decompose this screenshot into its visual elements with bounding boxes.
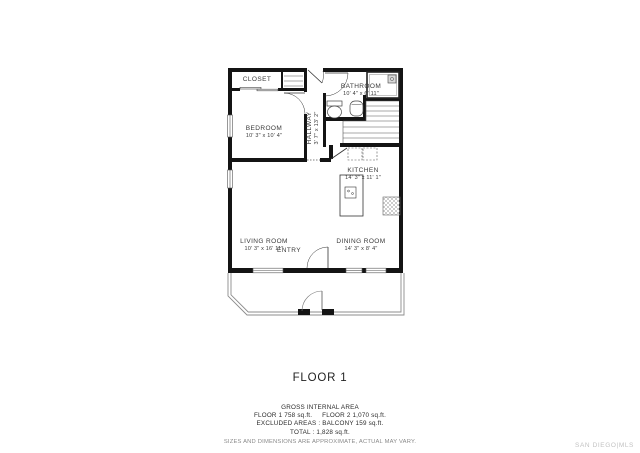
balcony-gate (298, 291, 334, 315)
room-name: BEDROOM (246, 125, 282, 133)
room-label-hallway: HALLWAY 3' 7" x 13' 2" (306, 112, 322, 145)
area-summary-title: GROSS INTERNAL AREA (0, 404, 640, 412)
window (228, 115, 233, 137)
floor1-area: FLOOR 1 758 sq.ft. (254, 412, 312, 419)
disclaimer-text: SIZES AND DIMENSIONS ARE APPROXIMATE, AC… (0, 439, 640, 445)
room-name: DINING ROOM (336, 238, 385, 246)
floor-plan-page: { "floor_plan": { "title": "FLOOR 1", "r… (0, 0, 640, 453)
floor-plan-drawing (220, 55, 415, 325)
room-name: HALLWAY (306, 112, 314, 145)
room-dims: 3' 7" x 13' 2" (315, 112, 322, 145)
linen-closet-shelves (284, 76, 303, 86)
bedroom-door-arc (284, 93, 305, 114)
total-area-line: TOTAL : 1,828 sq.ft. (0, 429, 640, 437)
area-summary: GROSS INTERNAL AREA FLOOR 1 758 sq.ft.FL… (0, 404, 640, 445)
room-label-entry: ENTRY (277, 247, 301, 255)
area-floors-line: FLOOR 1 758 sq.ft.FLOOR 2 1,070 sq.ft. (0, 412, 640, 420)
refrigerator (383, 197, 400, 215)
floor-title: FLOOR 1 (0, 372, 640, 384)
room-name: CLOSET (243, 76, 271, 84)
room-label-bathroom: BATHROOM 10' 4" x 6' 11" (341, 83, 381, 99)
window (346, 268, 362, 273)
room-name: ENTRY (277, 247, 301, 255)
window (253, 268, 283, 273)
sink-fixture (350, 101, 363, 116)
front-door (308, 70, 324, 83)
room-dims: 14' 3" x 8' 4" (336, 247, 385, 254)
closet-sliding-door (240, 87, 278, 91)
excluded-areas-line: EXCLUDED AREAS : BALCONY 159 sq.ft. (0, 420, 640, 428)
room-dims: 14' 3" x 11' 1" (345, 176, 381, 183)
kitchen-door (331, 148, 347, 159)
room-name: BATHROOM (341, 83, 381, 91)
floor2-area: FLOOR 2 1,070 sq.ft. (322, 412, 386, 419)
room-label-bedroom: BEDROOM 10' 3" x 10' 4" (246, 125, 282, 141)
mls-watermark: SAN DIEGO|MLS (575, 442, 634, 449)
room-name: KITCHEN (345, 167, 381, 175)
room-label-closet: CLOSET (243, 76, 271, 84)
entry-door-arc (307, 247, 328, 268)
room-label-kitchen: KITCHEN 14' 3" x 11' 1" (345, 167, 381, 183)
window (228, 170, 233, 188)
room-name: LIVING ROOM (240, 238, 288, 246)
room-dims: 10' 4" x 6' 11" (341, 92, 381, 99)
toilet-fixture (327, 101, 342, 118)
window (366, 268, 386, 273)
balcony-railing (228, 273, 404, 315)
kitchen-upper-cabinets (348, 148, 377, 160)
room-dims: 10' 3" x 10' 4" (246, 134, 282, 141)
room-label-dining-room: DINING ROOM 14' 3" x 8' 4" (336, 238, 385, 254)
